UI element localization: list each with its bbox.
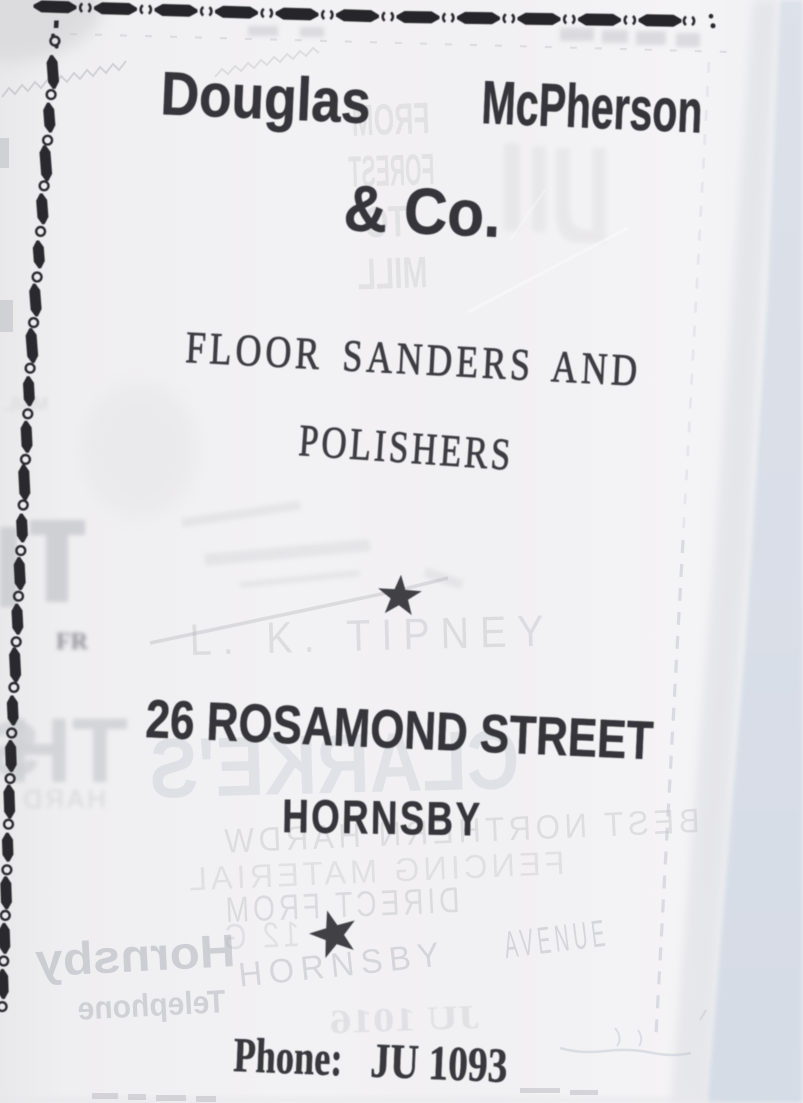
svg-text:Hornsby: Hornsby	[34, 924, 237, 986]
svg-text:McPherson: McPherson	[480, 68, 704, 146]
svg-text:FR: FR	[56, 629, 89, 655]
svg-text:Phone:: Phone:	[233, 1027, 344, 1086]
svg-text:Douglas: Douglas	[159, 59, 372, 136]
svg-text:JU 1093: JU 1093	[369, 1033, 508, 1093]
svg-text:HARD: HARD	[20, 784, 106, 814]
svg-text:HORNSBY: HORNSBY	[282, 789, 483, 845]
svg-text:MILL: MILL	[357, 248, 429, 299]
svg-text:L. K. TIPNEY: L. K. TIPNEY	[189, 606, 555, 665]
svg-text:& Co.: & Co.	[342, 171, 502, 251]
